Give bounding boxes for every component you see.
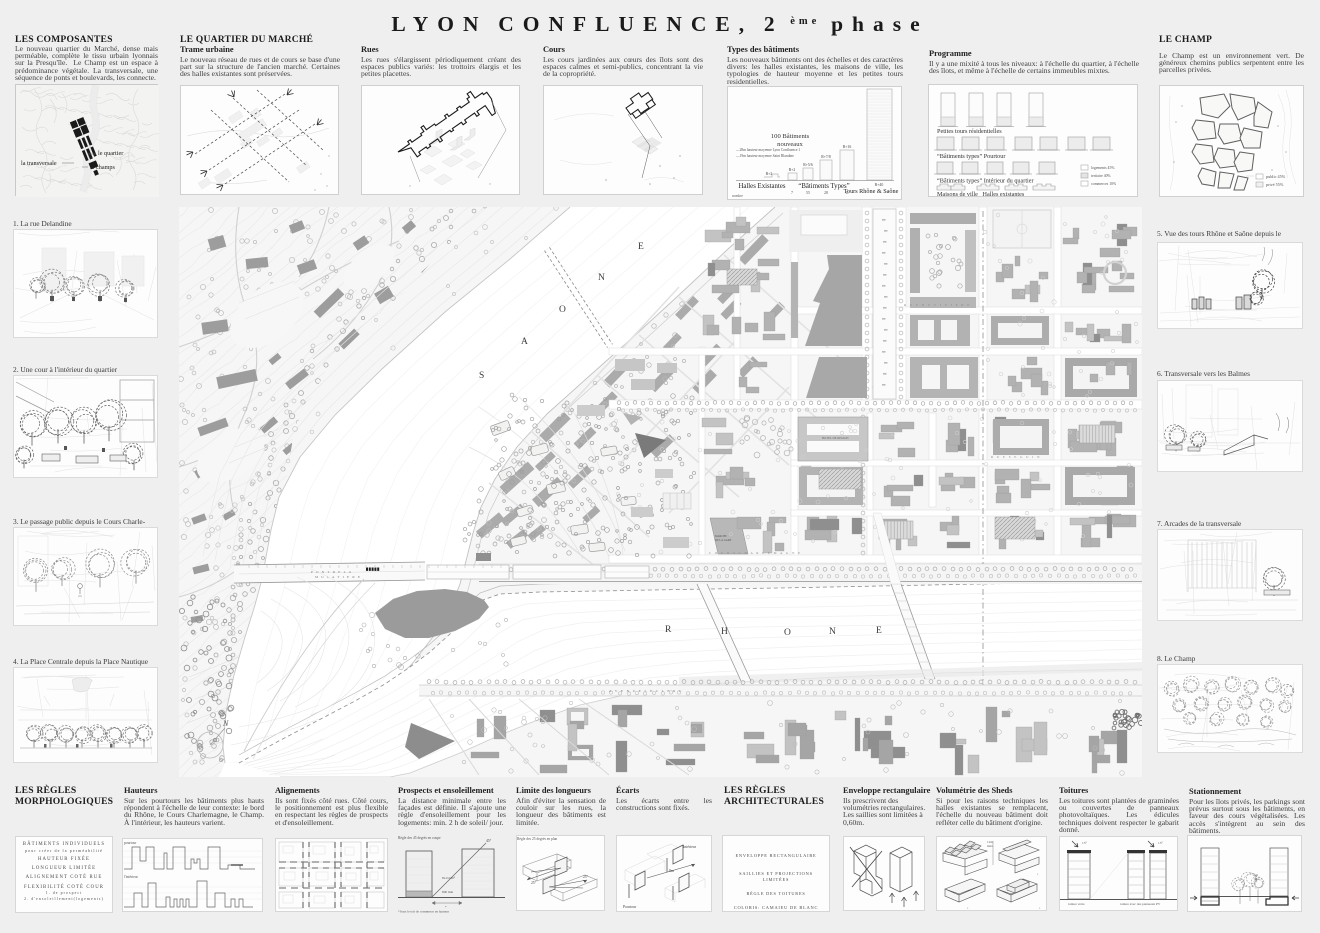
svg-text:55: 55 <box>806 190 810 195</box>
svg-text:O: O <box>784 628 791 638</box>
svg-text:A V E N U E L E C L E R C: A V E N U E L E C L E R C <box>609 689 683 693</box>
svg-text:toiture avec des panneaux PV: toiture avec des panneaux PV <box>1120 902 1161 906</box>
svg-text:public 45%: public 45% <box>1266 174 1286 179</box>
svg-text:R+7/8: R+7/8 <box>821 155 831 159</box>
svg-text:R+2: R+2 <box>789 168 796 172</box>
svg-text:R+2: R+2 <box>766 172 773 176</box>
svg-text:7: 7 <box>791 190 793 195</box>
svg-text:DE LA GARE: DE LA GARE <box>715 539 732 542</box>
svg-text:15°: 15° <box>1082 841 1087 845</box>
svg-text:25°: 25° <box>583 875 589 879</box>
svg-text:Pourtour: Pourtour <box>623 905 637 909</box>
svg-text:max: max <box>1254 877 1260 881</box>
svg-text:S: S <box>479 371 484 381</box>
svg-text:nouveaux: nouveaux <box>777 141 803 148</box>
svg-text:E: E <box>638 242 644 252</box>
svg-text:O: O <box>559 305 566 315</box>
svg-text:↓: ↓ <box>1039 906 1041 910</box>
svg-text:privé 55%: privé 55% <box>1266 182 1284 187</box>
svg-text:11: 11 <box>845 190 849 195</box>
svg-text:Règle des 25 degrés en plan: Règle des 25 degrés en plan <box>517 837 557 841</box>
svg-text:R U E D U V I V I E R E: R U E D U V I V I E R E <box>904 303 971 307</box>
svg-text:nombre: nombre <box>732 194 743 198</box>
svg-text:8x1x180°: 8x1x180° <box>442 876 456 880</box>
svg-text:R: R <box>665 625 672 635</box>
svg-text:“Bâtiments Types”: “Bâtiments Types” <box>798 183 849 190</box>
svg-text:tertiaire 40%: tertiaire 40% <box>1091 174 1112 178</box>
svg-text:—19m hauteur moyenne Saint Bl: —19m hauteur moyenne Saint Blandine <box>735 154 794 158</box>
svg-text:C O U R S C H A R L E M A G: C O U R S C H A R L E M A G N E <box>709 551 802 555</box>
svg-text:100 Bâtiments: 100 Bâtiments <box>771 133 810 140</box>
svg-text:*: * <box>445 905 447 909</box>
svg-text:↓: ↓ <box>967 872 969 876</box>
svg-text:l'intérieur: l'intérieur <box>124 875 139 879</box>
svg-text:A: A <box>521 337 528 347</box>
svg-text:toiture verte: toiture verte <box>1068 902 1085 906</box>
svg-text:*Sous le toit de commerce en h: *Sous le toit de commerce en hauteur <box>398 910 450 914</box>
svg-text:8m: 8m <box>669 869 674 873</box>
svg-text:H: H <box>721 627 728 637</box>
svg-text:800 min: 800 min <box>442 890 454 894</box>
svg-text:E: E <box>876 626 882 636</box>
svg-text:25°: 25° <box>531 881 537 885</box>
svg-text:MARCHE: MARCHE <box>715 535 727 538</box>
svg-text:max: max <box>987 844 993 848</box>
svg-text:R U E S E G U I N: R U E S E G U I N <box>991 455 1041 459</box>
svg-text:P O N T D E L A: P O N T D E L A <box>311 570 352 574</box>
svg-text:N: N <box>829 627 836 637</box>
svg-text:Petites tours résidentielles: Petites tours résidentielles <box>937 128 1002 135</box>
svg-text:le quartier: le quartier <box>98 150 123 157</box>
svg-text:commerces 10%: commerces 10% <box>1091 182 1117 186</box>
svg-text:Halles Existantes: Halles Existantes <box>738 183 785 190</box>
svg-text:M U L A T I E R E: M U L A T I E R E <box>315 575 361 579</box>
svg-text:↓: ↓ <box>1037 872 1039 876</box>
svg-text:45°: 45° <box>486 839 492 843</box>
svg-text:R+16: R+16 <box>843 145 852 149</box>
svg-text:HOTEL DE REGION: HOTEL DE REGION <box>822 436 849 440</box>
svg-text:N: N <box>598 273 605 283</box>
svg-text:↓: ↓ <box>967 906 969 910</box>
svg-text:Règle des 45 degrés en coupe: Règle des 45 degrés en coupe <box>398 836 441 840</box>
svg-text:—28m hauteur moyenne Lyon Con: —28m hauteur moyenne Lyon Confluence 1 <box>735 148 800 152</box>
svg-text:“Bâtiments types” Intérieur du: “Bâtiments types” Intérieur du quartier <box>937 178 1034 185</box>
svg-text:la transversale: la transversale <box>21 160 57 167</box>
svg-text:Intérieur: Intérieur <box>683 845 697 849</box>
svg-text:logements 45%: logements 45% <box>1091 166 1115 170</box>
svg-text:Maisons de ville Halles exis: Maisons de ville Halles existantes <box>937 191 1025 196</box>
svg-text:pourtour: pourtour <box>124 841 137 845</box>
svg-text:28: 28 <box>824 190 828 195</box>
svg-text:N: N <box>222 719 229 728</box>
svg-text:Tours Rhône & Saône: Tours Rhône & Saône <box>844 188 899 195</box>
svg-text:15°: 15° <box>1158 841 1163 845</box>
svg-text:R+5/6: R+5/6 <box>803 163 813 167</box>
svg-text:le champs: le champs <box>90 164 116 171</box>
svg-text:“Bâtiments types” Pourtour: “Bâtiments types” Pourtour <box>937 153 1005 160</box>
svg-text:R+40: R+40 <box>875 183 884 187</box>
